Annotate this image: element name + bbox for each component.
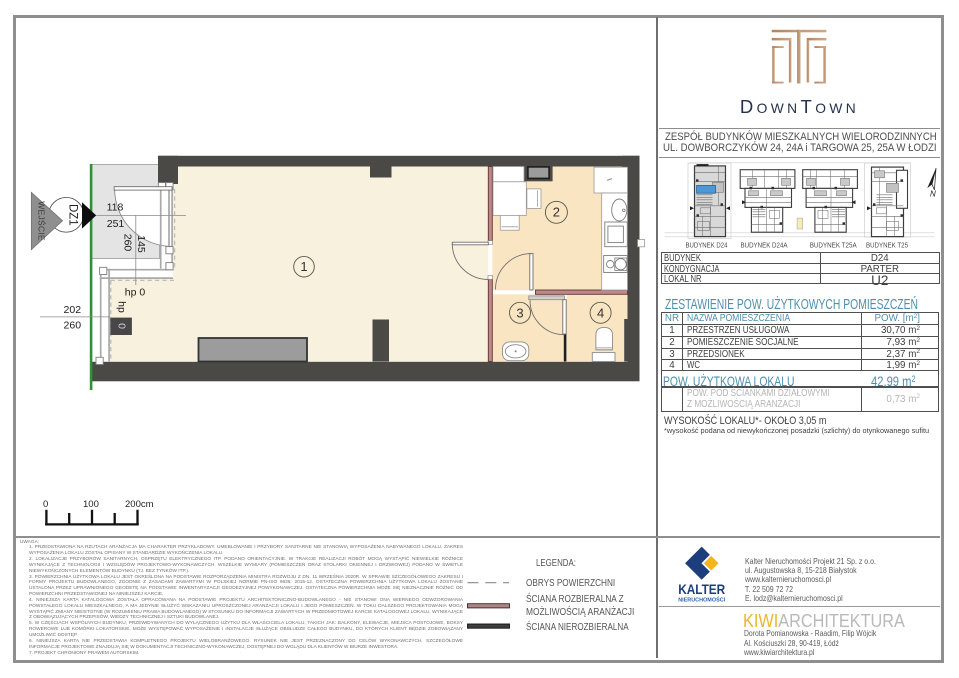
svg-text:BUDYNEK T25: BUDYNEK T25 [866, 242, 908, 249]
svg-text:hp 0: hp 0 [125, 287, 146, 299]
svg-text:0: 0 [116, 323, 128, 329]
svg-text:4: 4 [597, 305, 604, 320]
svg-text:KALTER: KALTER [678, 581, 725, 597]
svg-text:NIERUCHOMOŚCI: NIERUCHOMOŚCI [678, 597, 725, 604]
svg-text:N: N [930, 189, 936, 198]
svg-text:100: 100 [83, 499, 99, 510]
svg-text:260: 260 [64, 320, 82, 332]
svg-text:BUDYNEK D24A: BUDYNEK D24A [740, 242, 787, 249]
svg-text:hp: hp [116, 301, 128, 313]
svg-text:145: 145 [135, 235, 147, 253]
svg-text:260: 260 [121, 234, 133, 252]
svg-text:200cm: 200cm [125, 499, 154, 510]
svg-text:251: 251 [107, 218, 125, 230]
svg-text:WEJŚCIE: WEJŚCIE [36, 201, 47, 241]
svg-text:118: 118 [107, 202, 124, 214]
svg-text:202: 202 [64, 304, 82, 316]
svg-text:BUDYNEK T25A: BUDYNEK T25A [809, 242, 856, 249]
svg-text:2: 2 [553, 205, 560, 220]
svg-text:1: 1 [300, 259, 307, 274]
svg-text:3: 3 [516, 305, 523, 320]
svg-text:0: 0 [43, 499, 48, 510]
svg-text:BUDYNEK D24: BUDYNEK D24 [685, 242, 727, 249]
svg-text:DZ1: DZ1 [66, 204, 78, 226]
